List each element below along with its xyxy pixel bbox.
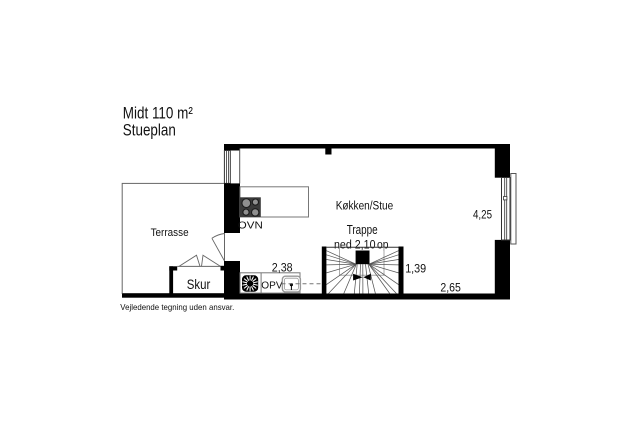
svg-text:Trappe: Trappe — [347, 222, 378, 237]
svg-text:2,65: 2,65 — [440, 282, 461, 294]
svg-text:Skur: Skur — [187, 276, 211, 292]
svg-text:ned 2,10: ned 2,10 — [334, 239, 376, 251]
svg-text:Køkken/Stue: Køkken/Stue — [336, 200, 394, 212]
svg-text:OPV: OPV — [261, 280, 282, 292]
svg-text:op: op — [377, 239, 389, 251]
svg-text:1,39: 1,39 — [405, 263, 426, 275]
svg-text:Stueplan: Stueplan — [123, 122, 176, 140]
svg-text:4,25: 4,25 — [473, 210, 492, 222]
svg-text:Midt 110 m²: Midt 110 m² — [123, 105, 193, 123]
svg-text:Vejledende tegning uden ansvar: Vejledende tegning uden ansvar. — [120, 302, 234, 312]
svg-text:OVN: OVN — [238, 220, 263, 231]
svg-text:2,38: 2,38 — [272, 263, 293, 275]
svg-text:Terrasse: Terrasse — [151, 227, 189, 239]
